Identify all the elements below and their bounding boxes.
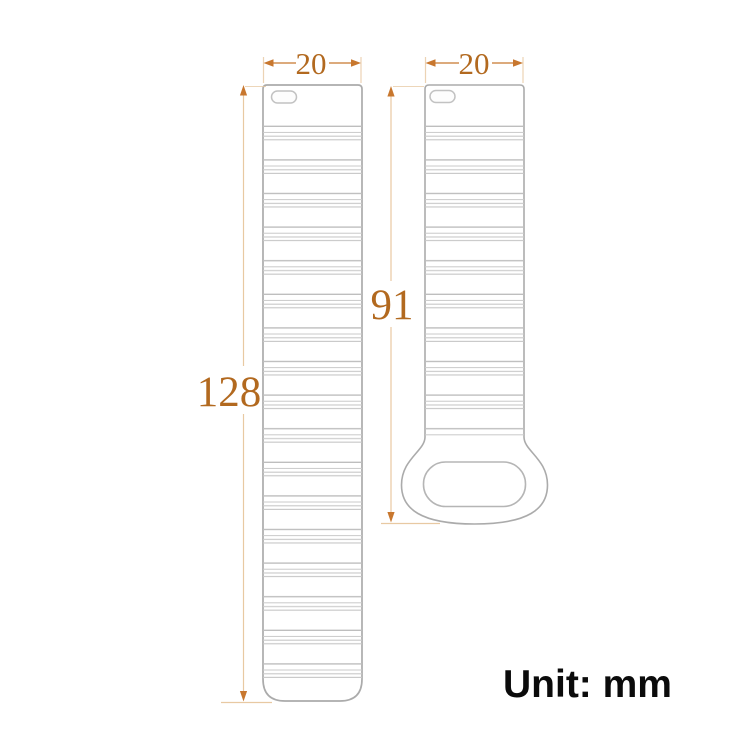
arrow-down-icon xyxy=(387,512,394,523)
band-short-pin-hole xyxy=(430,91,455,103)
band-short-ribs xyxy=(401,118,548,436)
arrow-down-icon xyxy=(240,691,247,702)
dim-width-long: 20 xyxy=(264,46,362,83)
arrow-right-icon xyxy=(513,59,523,66)
band-dimension-diagram: 20 20 128 91 Unit: mm xyxy=(0,0,750,750)
arrow-left-icon xyxy=(264,59,274,66)
dim-width-short-label: 20 xyxy=(459,46,490,81)
arrow-right-icon xyxy=(351,59,361,66)
arrow-left-icon xyxy=(426,59,436,66)
diagram-canvas: 20 20 128 91 Unit: mm xyxy=(0,0,750,750)
dim-width-short: 20 xyxy=(426,46,524,83)
arrow-up-icon xyxy=(387,86,394,97)
dim-length-long-label: 128 xyxy=(197,369,262,416)
band-long-pin-hole xyxy=(272,91,297,103)
dim-width-long-label: 20 xyxy=(296,46,327,81)
band-long xyxy=(262,85,363,701)
band-short xyxy=(401,85,548,524)
band-long-ribs xyxy=(262,118,363,680)
band-short-loop-hole xyxy=(424,462,526,507)
dim-length-short-label: 91 xyxy=(371,282,414,329)
dim-length-long: 128 xyxy=(197,85,272,703)
unit-label: Unit: mm xyxy=(503,663,672,706)
